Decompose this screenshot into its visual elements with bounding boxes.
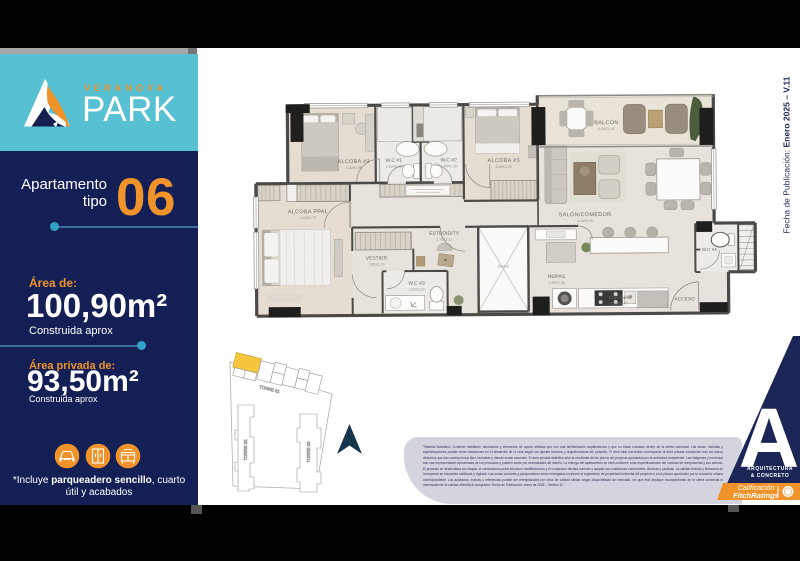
svg-text:W.C #2: W.C #2	[440, 157, 457, 163]
svg-text:1.90X1.75: 1.90X1.75	[368, 262, 384, 266]
svg-text:3.10X1.40: 3.10X1.40	[610, 301, 626, 305]
svg-text:3.00X3.05: 3.00X3.05	[496, 165, 512, 169]
svg-text:1.50X2.20: 1.50X2.20	[408, 288, 424, 292]
svg-text:BALCÓN: BALCÓN	[594, 119, 618, 126]
svg-text:ARQUITECTURA: ARQUITECTURA	[747, 466, 793, 472]
svg-text:ALCOBA #2: ALCOBA #2	[338, 159, 370, 165]
svg-text:W.C #3: W.C #3	[408, 281, 425, 287]
svg-text:FitchRatings: FitchRatings	[733, 491, 779, 500]
svg-text:TORRE 03: TORRE 03	[306, 441, 311, 463]
svg-text:VESTIER: VESTIER	[366, 256, 388, 262]
svg-text:ALCOBA PPAL: ALCOBA PPAL	[288, 209, 328, 215]
svg-text:TORRE 02: TORRE 02	[243, 439, 248, 461]
svg-text:& CONCRETO: & CONCRETO	[751, 473, 790, 479]
svg-text:SALÓN/COMEDOR: SALÓN/COMEDOR	[559, 211, 612, 218]
svg-text:W.C #1: W.C #1	[385, 158, 402, 164]
svg-text:W.C #4: W.C #4	[702, 247, 718, 252]
svg-text:3.10X3.05: 3.10X3.05	[346, 166, 362, 170]
svg-text:ROPAS: ROPAS	[548, 274, 566, 280]
svg-text:Ducto: Ducto	[498, 264, 510, 269]
svg-text:5.60X1.45: 5.60X1.45	[598, 127, 614, 131]
svg-text:3.50X3.77: 3.50X3.77	[300, 216, 316, 220]
svg-text:1.40X2.20: 1.40X2.20	[386, 165, 402, 169]
svg-text:COCINA: COCINA	[609, 295, 629, 301]
svg-text:2.00X1.48: 2.00X1.48	[548, 281, 564, 285]
svg-text:ESTUDIO/TV: ESTUDIO/TV	[429, 231, 460, 237]
svg-text:1.70X2.11: 1.70X2.11	[436, 238, 452, 242]
svg-text:4.10X5.45: 4.10X5.45	[577, 219, 593, 223]
svg-text:ACCESO: ACCESO	[675, 296, 696, 302]
svg-text:ALCOBA #3: ALCOBA #3	[488, 158, 520, 164]
svg-text:1.40X2.20: 1.40X2.20	[441, 164, 457, 168]
